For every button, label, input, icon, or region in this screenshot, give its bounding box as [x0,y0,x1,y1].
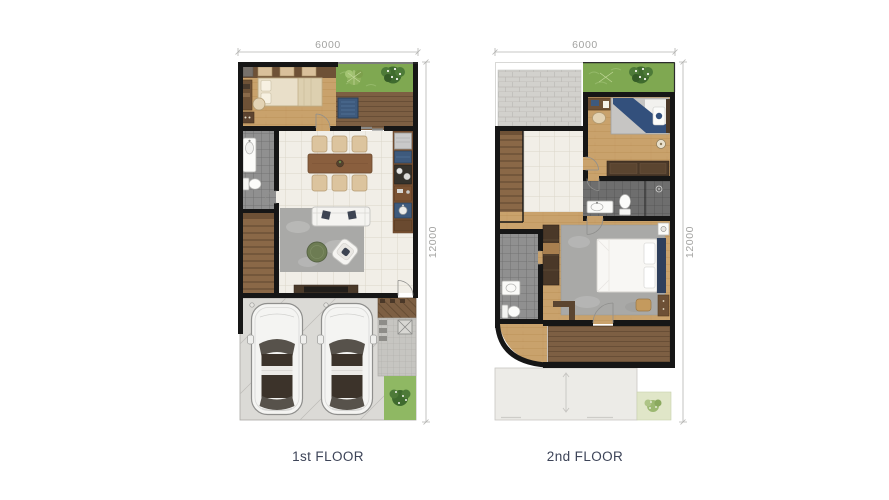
cabinet [395,220,412,231]
hall-floor [523,130,583,222]
floor1-right-dimension: 12000 [422,60,439,425]
dining-chair [312,175,327,191]
bed-single [611,98,670,134]
floor2-right-dimension: 12000 [679,60,696,425]
tv [304,287,348,293]
sofa [312,207,370,226]
dining-chair [332,136,347,152]
bedroom-2 [583,92,675,181]
carport-roof [495,368,671,420]
master-bedroom-set [543,223,669,322]
car-left [248,304,307,415]
bench [569,307,575,322]
floor1-height-dimension: 12000 [427,226,439,258]
closet [543,225,559,285]
ensuite-bathroom [500,234,538,319]
sliding-door [361,127,372,129]
floor2-plan: 6000 12000 [482,37,712,442]
bed-double [597,238,666,293]
sliding-door [372,128,383,130]
drain-cover [250,303,254,307]
floor2-body [495,62,675,420]
floor2-drawing: 6000 12000 [482,37,712,437]
chair [253,98,265,110]
fridge [395,133,412,149]
headboard [657,238,666,293]
floor1-body [238,62,418,420]
dining-chair [332,175,347,191]
bed-single [258,78,322,106]
dining-set [308,136,372,191]
toilet [620,195,631,216]
floor1-top-dimension: 6000 [236,39,421,56]
stairs-1 [241,213,274,298]
car-right [318,304,377,415]
desk [587,98,613,110]
bench [553,301,575,307]
floor2-top-dimension: 6000 [493,39,678,56]
tv-cabinet [294,285,358,294]
dining-chair [312,136,327,152]
toilet [502,305,520,318]
vanity [502,281,520,295]
pouf [307,242,327,262]
floor2-height-dimension: 12000 [684,226,696,258]
dresser [658,295,669,316]
wardrobe [607,161,669,176]
stairs-2 [498,130,523,214]
floor2-width-dimension: 6000 [572,39,598,51]
floor1-drawing: 6000 12000 [225,37,455,437]
terrace-deck [336,92,415,131]
kitchen [393,131,413,233]
bathroom-1 [241,131,276,209]
floor1-plan: 6000 12000 [225,37,455,442]
door-mat [338,98,358,118]
floor2-label: 2nd FLOOR [495,449,675,464]
garden [336,64,415,92]
floor1-label: 1st FLOOR [238,449,418,464]
bathroom-2 [583,181,671,216]
floorplan-canvas: 6000 12000 [0,0,889,500]
floor1-width-dimension: 6000 [315,39,341,51]
toilet [243,178,261,190]
balcony-deck [548,326,670,362]
dining-chair [352,175,367,191]
chair [593,113,606,124]
canopy-roof [496,63,584,129]
bedroom-1 [241,65,336,131]
ottoman [636,299,651,311]
garden-void [583,62,675,92]
dining-chair [352,136,367,152]
